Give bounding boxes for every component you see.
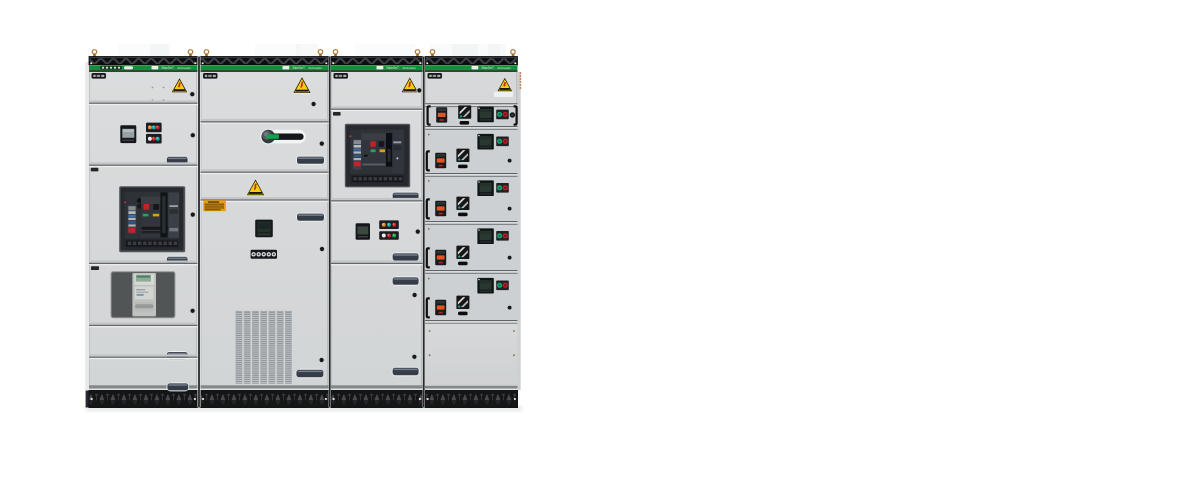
svg-text:BlokSeT: BlokSeT [482, 66, 494, 70]
svg-text:BlokSeT: BlokSeT [387, 66, 399, 70]
svg-text:Schneider: Schneider [178, 66, 192, 70]
svg-text:BlokSeT: BlokSeT [162, 66, 174, 70]
svg-text:Schneider: Schneider [498, 66, 512, 70]
svg-text:Schneider: Schneider [309, 66, 323, 70]
svg-text:BlokSeT: BlokSeT [293, 66, 305, 70]
svg-text:Schneider: Schneider [403, 66, 417, 70]
